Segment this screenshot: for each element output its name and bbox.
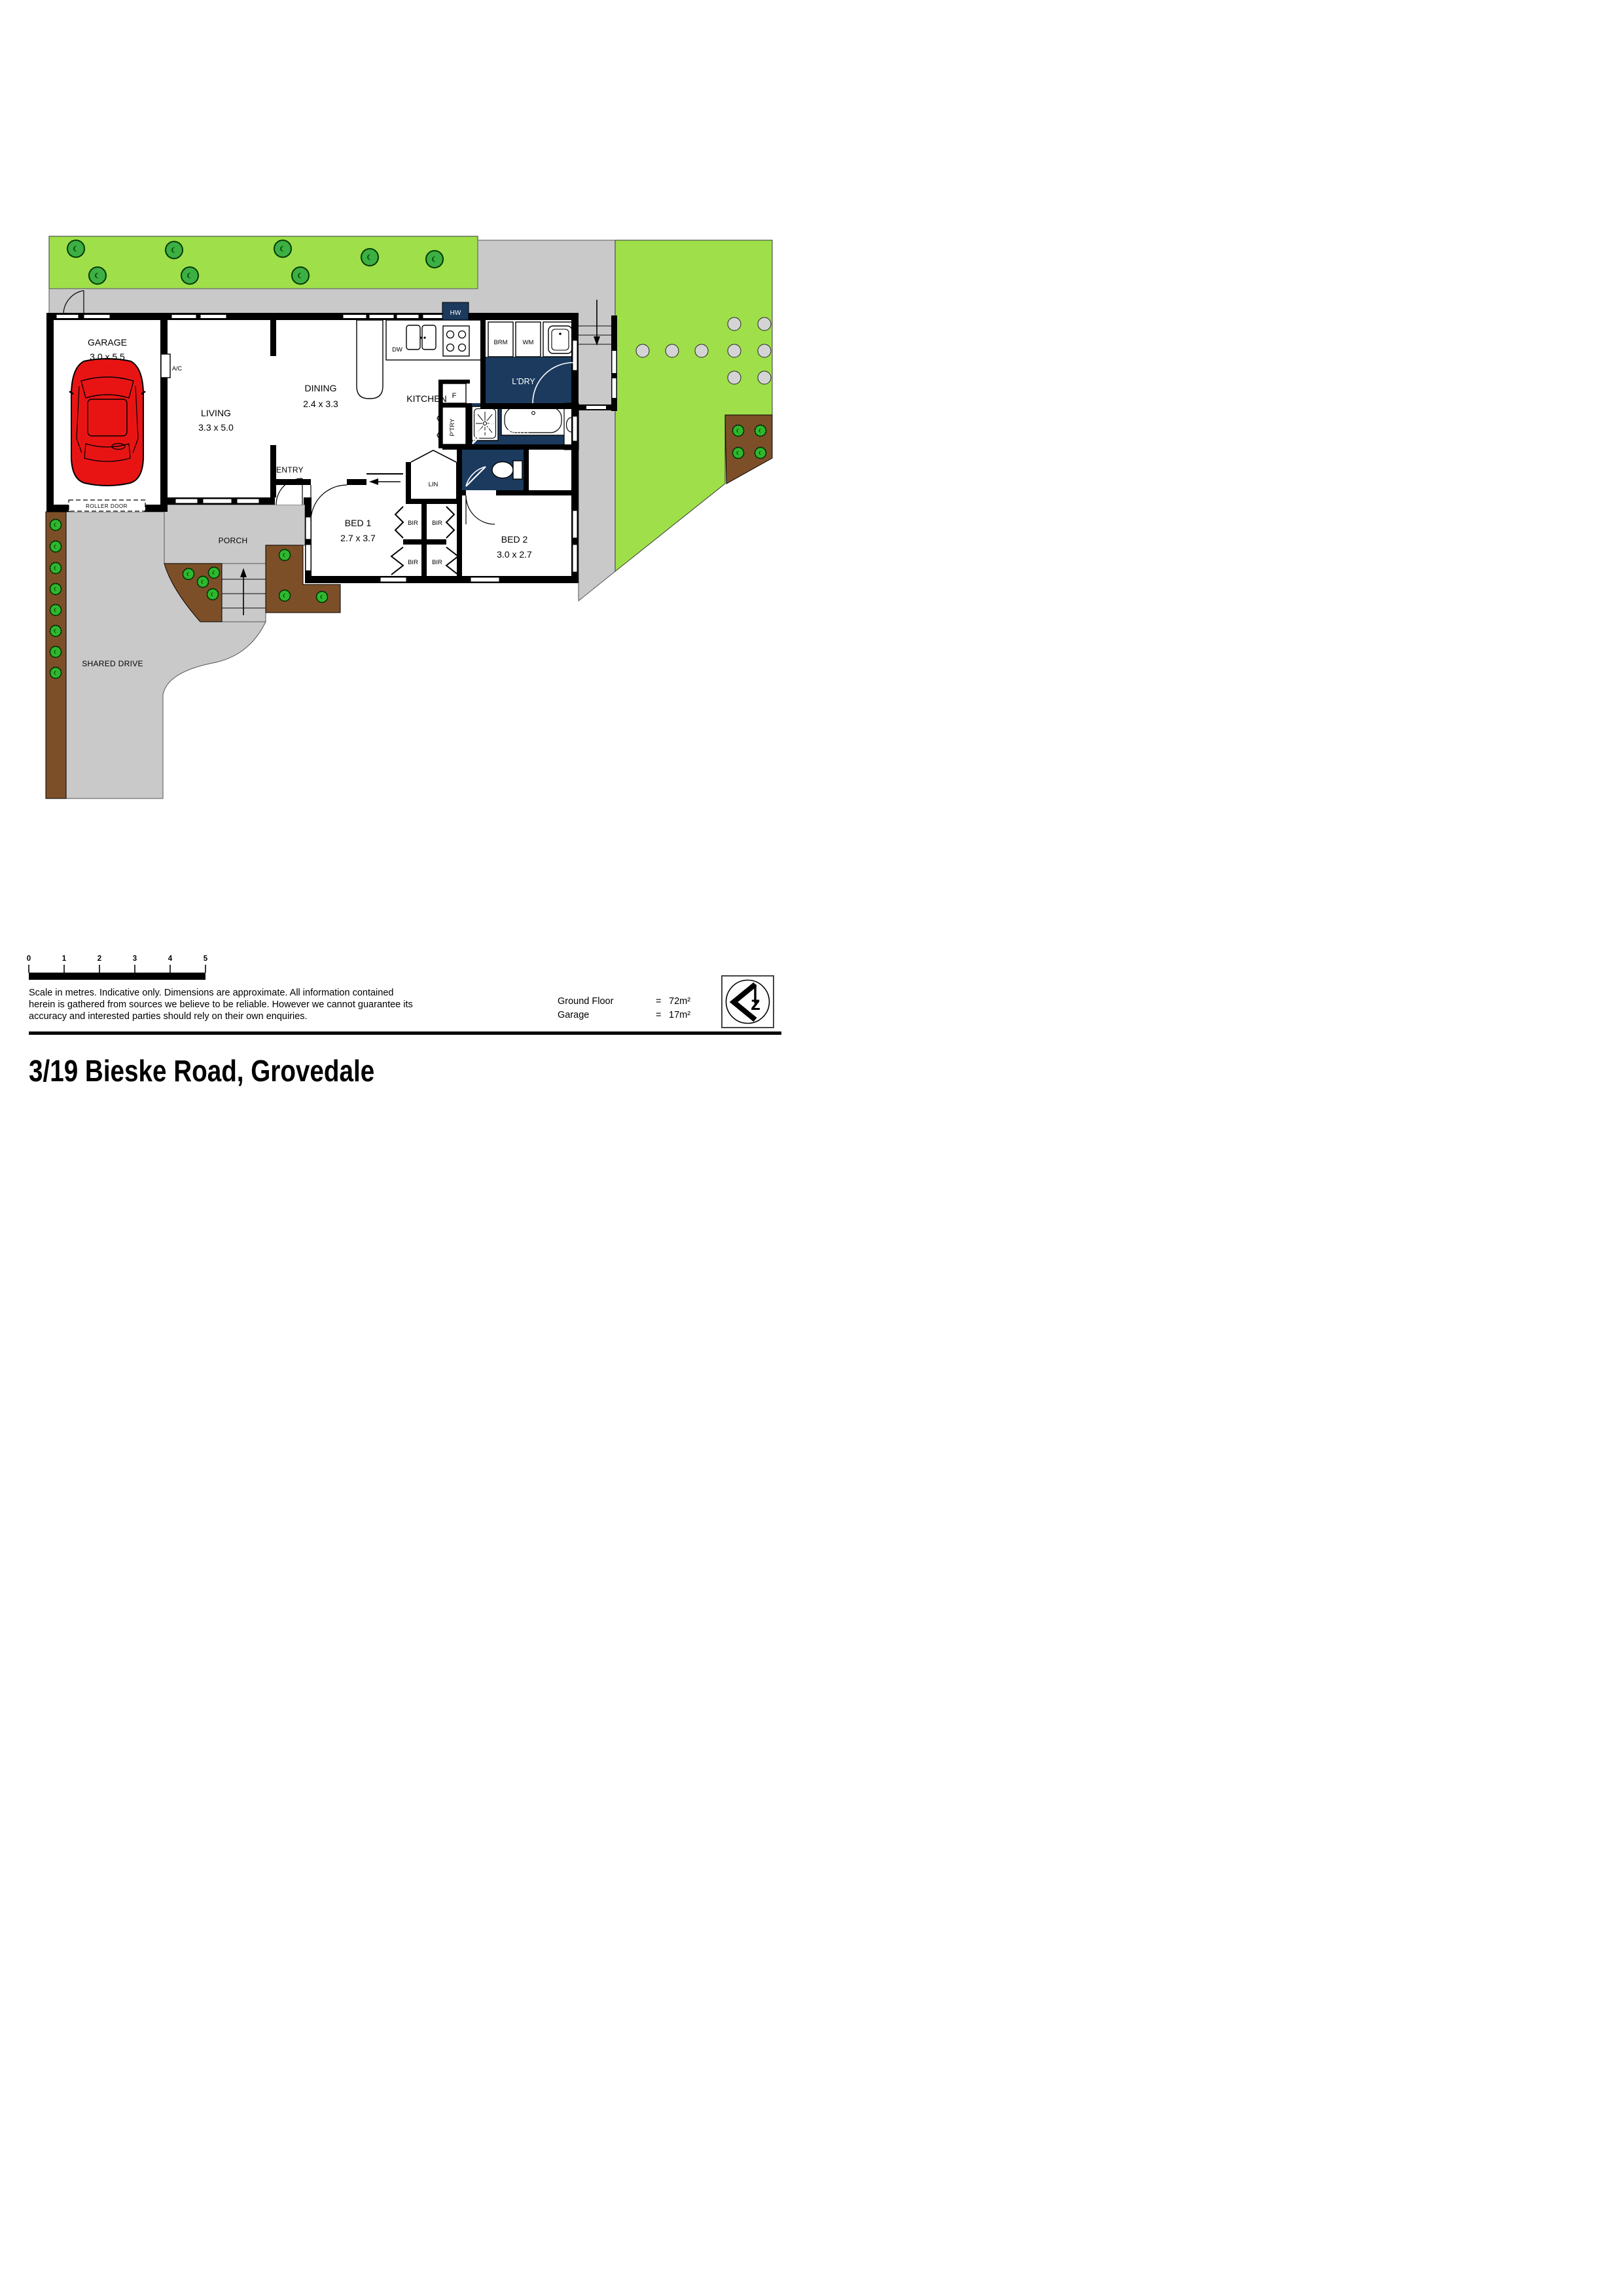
bed1-dims: 2.7 x 3.7 <box>340 533 376 543</box>
stove-icon <box>443 326 469 356</box>
garage-area-eq: = <box>656 1010 661 1020</box>
living-label: LIVING <box>201 408 231 418</box>
page-title-group: 3/19 Bieske Road, Grovedale <box>29 1054 374 1088</box>
garden-strip-top <box>49 236 478 289</box>
bath-label: BATH <box>508 427 529 436</box>
toilet-icon <box>492 461 522 479</box>
garage-area-label: Garage <box>558 1010 589 1020</box>
floorplan-canvas: GARAGE 3.0 x 5.5 LIVING 3.3 x 5.0 DINING… <box>0 0 811 1148</box>
footer-divider <box>29 1031 781 1035</box>
garage-label: GARAGE <box>88 337 127 348</box>
bed2-dims: 3.0 x 2.7 <box>497 549 532 560</box>
hw-label: HW <box>450 310 461 317</box>
linen-label: LIN <box>429 481 438 488</box>
roller-door-label: ROLLER DOOR <box>86 503 128 509</box>
ground-floor-eq: = <box>656 996 661 1007</box>
floor-plan: GARAGE 3.0 x 5.5 LIVING 3.3 x 5.0 DINING… <box>46 236 772 798</box>
bir-label: BIR <box>408 559 418 566</box>
compass-logo-icon: z <box>722 976 774 1028</box>
garage-dims: 3.0 x 5.5 <box>90 351 125 362</box>
garden-right <box>615 240 772 571</box>
disclaimer: Scale in metres. Indicative only. Dimens… <box>29 988 413 1022</box>
svg-text:4: 4 <box>168 955 173 963</box>
svg-text:3: 3 <box>133 955 137 963</box>
kitchen-label: KITCHEN <box>406 393 446 404</box>
bir-label: BIR <box>432 559 442 566</box>
kitchen-bench-return <box>357 320 383 399</box>
page-title: 3/19 Bieske Road, Grovedale <box>29 1054 374 1088</box>
laundry-label: L'DRY <box>512 377 535 386</box>
pantry-label: P'TRY <box>449 418 456 437</box>
ground-floor-value: 72m² <box>669 996 690 1007</box>
shared-drive-label: SHARED DRIVE <box>82 659 143 668</box>
living-dims: 3.3 x 5.0 <box>198 422 234 433</box>
svg-text:1: 1 <box>62 955 67 963</box>
svg-text:herein is gathered from source: herein is gathered from sources we belie… <box>29 999 413 1010</box>
ground-floor-label: Ground Floor <box>558 996 614 1007</box>
ac-label: A/C <box>172 365 183 372</box>
svg-text:0: 0 <box>27 955 31 963</box>
garage-area-value: 17m² <box>669 1010 690 1020</box>
bed2-label: BED 2 <box>501 534 528 545</box>
car-icon <box>69 359 145 486</box>
brm-label: BRM <box>493 339 507 346</box>
wm-label: WM <box>523 339 534 346</box>
floor-areas: Ground Floor = 72m² Garage = 17m² <box>558 996 690 1020</box>
dining-dims: 2.4 x 3.3 <box>303 399 338 409</box>
dw-label: DW <box>392 346 402 353</box>
porch-label: PORCH <box>219 536 248 545</box>
bed1-label: BED 1 <box>345 518 372 528</box>
floorplan-page: GARAGE 3.0 x 5.5 LIVING 3.3 x 5.0 DINING… <box>0 0 811 1148</box>
front-door-opening <box>275 497 304 505</box>
ac-unit <box>161 354 170 378</box>
entry-label: ENTRY <box>276 465 304 475</box>
kitchen-sink-icon <box>406 325 420 350</box>
svg-text:5: 5 <box>204 955 208 963</box>
fridge-label: F <box>452 392 457 400</box>
dining-label: DINING <box>305 383 337 393</box>
svg-text:Scale in metres. Indicative on: Scale in metres. Indicative only. Dimens… <box>29 988 393 998</box>
svg-text:z: z <box>751 993 760 1014</box>
bir-label: BIR <box>408 520 418 527</box>
bir-label: BIR <box>432 520 442 527</box>
svg-text:accuracy and interested partie: accuracy and interested parties should r… <box>29 1011 308 1022</box>
svg-text:2: 2 <box>98 955 101 963</box>
scale-bar: 0 1 2 3 4 5 <box>27 955 208 980</box>
